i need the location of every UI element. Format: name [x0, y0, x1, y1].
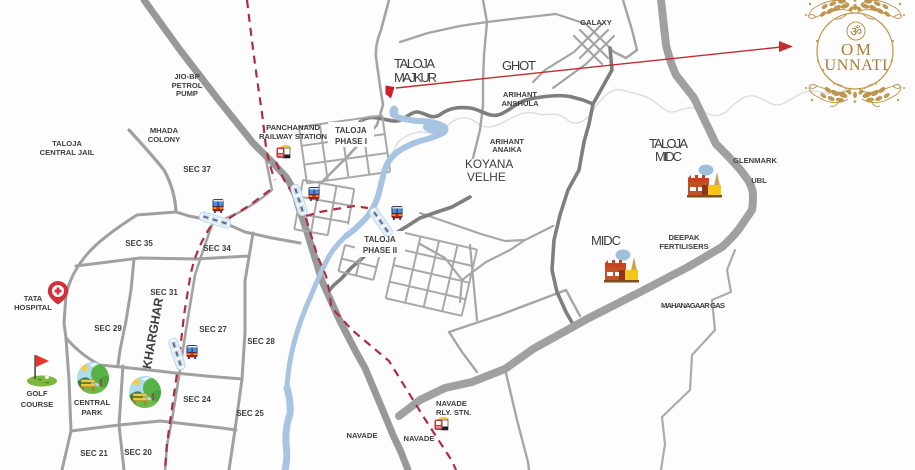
svg-text:PHASE I: PHASE I: [335, 137, 367, 146]
svg-text:KOYANA: KOYANA: [465, 157, 513, 171]
svg-text:MIDC: MIDC: [591, 233, 621, 248]
svg-text:MAJKUR: MAJKUR: [394, 70, 437, 85]
svg-text:MAHANAGAAR GAS: MAHANAGAAR GAS: [661, 301, 725, 310]
svg-text:PUMP: PUMP: [176, 89, 198, 98]
svg-text:TALOJA: TALOJA: [335, 126, 367, 135]
svg-text:FERTILISERS: FERTILISERS: [659, 242, 708, 251]
svg-text:GLENMARK: GLENMARK: [733, 156, 777, 165]
svg-text:MIDC: MIDC: [655, 149, 682, 164]
svg-text:SEC 37: SEC 37: [183, 165, 211, 174]
svg-text:ARIHANT: ARIHANT: [503, 90, 538, 99]
svg-text:SEC 31: SEC 31: [150, 288, 178, 297]
svg-text:SEC 35: SEC 35: [125, 239, 153, 248]
svg-text:PANCHANAND: PANCHANAND: [266, 123, 320, 132]
svg-text:RLY. STN.: RLY. STN.: [436, 408, 471, 417]
svg-text:PARK: PARK: [82, 408, 103, 417]
svg-text:SEC 28: SEC 28: [247, 337, 275, 346]
svg-text:UNNATI: UNNATI: [825, 57, 888, 74]
svg-text:TALOJA: TALOJA: [364, 235, 396, 244]
svg-text:SEC 29: SEC 29: [94, 324, 122, 333]
svg-text:SEC 20: SEC 20: [124, 448, 152, 457]
svg-text:JIO-BP: JIO-BP: [174, 72, 199, 81]
svg-text:CENTRAL: CENTRAL: [74, 398, 111, 407]
svg-text:MHADA: MHADA: [150, 126, 179, 135]
svg-text:SEC 25: SEC 25: [236, 409, 264, 418]
svg-text:TALOJA: TALOJA: [394, 56, 435, 71]
svg-text:HOSPITAL: HOSPITAL: [14, 303, 52, 312]
svg-text:GOLF: GOLF: [26, 389, 47, 398]
svg-text:TALOJA: TALOJA: [52, 139, 82, 148]
svg-text:SEC 34: SEC 34: [203, 244, 231, 253]
svg-text:DEEPAK: DEEPAK: [668, 233, 700, 242]
svg-text:PHASE II: PHASE II: [363, 246, 397, 255]
svg-text:SEC 24: SEC 24: [183, 395, 211, 404]
svg-text:COLONY: COLONY: [148, 135, 181, 144]
svg-text:RAILWAY STATION: RAILWAY STATION: [259, 132, 327, 141]
svg-text:NAVADE: NAVADE: [347, 431, 378, 440]
svg-text:ANAIKA: ANAIKA: [492, 145, 522, 154]
svg-text:SEC 27: SEC 27: [199, 325, 227, 334]
svg-text:UBL: UBL: [751, 176, 767, 185]
svg-text:NAVADE: NAVADE: [404, 434, 435, 443]
svg-text:TATA: TATA: [24, 294, 43, 303]
svg-text:GHOT: GHOT: [502, 58, 536, 73]
svg-text:GALAXY: GALAXY: [580, 18, 612, 27]
svg-text:NAVADE: NAVADE: [436, 399, 467, 408]
svg-text:COURSE: COURSE: [21, 400, 54, 409]
svg-text:ANSHULA: ANSHULA: [501, 99, 539, 108]
svg-text:SEC 21: SEC 21: [80, 449, 108, 458]
svg-text:ॐ: ॐ: [850, 24, 862, 39]
svg-text:CENTRAL JAIL: CENTRAL JAIL: [40, 148, 95, 157]
svg-text:VELHE: VELHE: [467, 170, 506, 184]
